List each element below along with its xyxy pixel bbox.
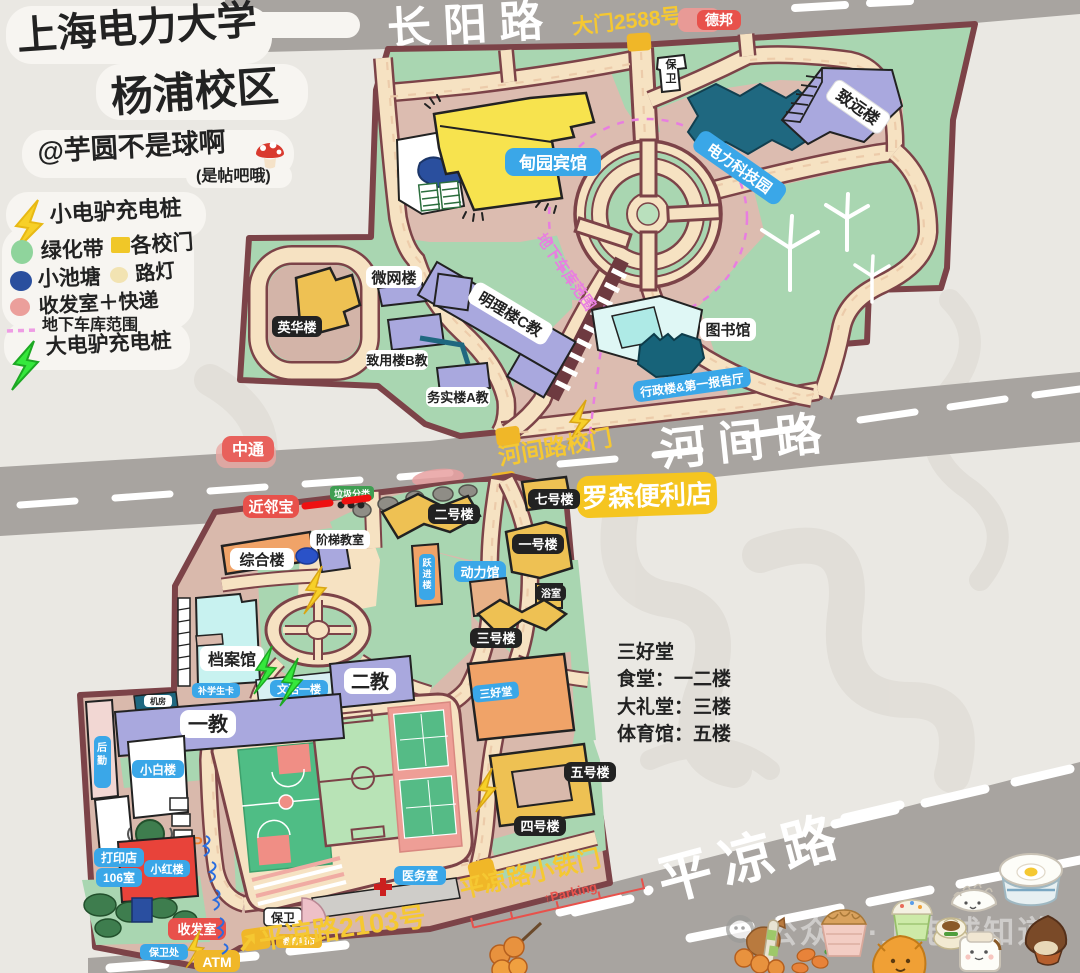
svg-text:卫: 卫 [666, 72, 677, 85]
svg-text:楼: 楼 [422, 579, 431, 590]
svg-text:罗森便利店: 罗森便利店 [582, 479, 713, 514]
svg-text:保: 保 [665, 57, 678, 71]
svg-text:绿化带: 绿化带 [40, 237, 104, 263]
svg-text:五号楼: 五号楼 [570, 765, 609, 780]
svg-text:英华楼: 英华楼 [276, 320, 316, 335]
svg-text:勤: 勤 [97, 754, 107, 767]
svg-text:务实楼A教: 务实楼A教 [427, 390, 489, 405]
svg-text:档案馆: 档案馆 [208, 650, 256, 669]
svg-text:大礼堂：三楼: 大礼堂：三楼 [617, 695, 731, 718]
svg-text:中通: 中通 [232, 440, 264, 459]
svg-text:(是帖吧哦): (是帖吧哦) [196, 166, 271, 185]
svg-text:四号楼: 四号楼 [520, 819, 559, 834]
svg-text:甸园宾馆: 甸园宾馆 [518, 153, 587, 173]
svg-text:补学生卡: 补学生卡 [197, 685, 234, 696]
svg-text:三好堂: 三好堂 [617, 640, 674, 663]
svg-text:后: 后 [97, 741, 107, 754]
svg-text:小白楼: 小白楼 [140, 762, 176, 777]
svg-text:图书馆: 图书馆 [705, 321, 750, 339]
svg-text:二教: 二教 [351, 670, 390, 693]
svg-text:跃: 跃 [422, 557, 432, 568]
svg-text:德邦: 德邦 [705, 12, 733, 28]
svg-text:打印店: 打印店 [101, 850, 137, 865]
svg-text:三号楼: 三号楼 [476, 631, 515, 646]
svg-text:近邻宝: 近邻宝 [248, 498, 293, 516]
svg-text:二号楼: 二号楼 [434, 507, 473, 522]
svg-text:动力馆: 动力馆 [460, 565, 499, 580]
svg-text:各校门: 各校门 [129, 230, 195, 258]
svg-text:小红楼: 小红楼 [150, 862, 184, 876]
svg-text:食堂：一二楼: 食堂：一二楼 [617, 667, 731, 690]
svg-text:ATM: ATM [202, 954, 231, 970]
svg-text:阶梯教室: 阶梯教室 [316, 532, 364, 547]
svg-text:医务室: 医务室 [402, 868, 438, 883]
svg-text:小池塘: 小池塘 [37, 265, 101, 291]
svg-text:浴室: 浴室 [541, 587, 561, 600]
svg-text:保卫处: 保卫处 [148, 946, 180, 959]
svg-text:106室: 106室 [103, 870, 135, 885]
svg-text:综合楼: 综合楼 [239, 551, 284, 569]
svg-text:一教: 一教 [188, 712, 229, 736]
svg-text:七号楼: 七号楼 [534, 492, 573, 507]
svg-text:体育馆：五楼: 体育馆：五楼 [617, 722, 731, 745]
svg-text:机房: 机房 [150, 696, 166, 706]
svg-text:进: 进 [422, 568, 431, 579]
svg-text:致用楼B教: 致用楼B教 [366, 353, 428, 368]
svg-text:一号楼: 一号楼 [518, 537, 557, 552]
svg-text:微网楼: 微网楼 [370, 269, 416, 287]
